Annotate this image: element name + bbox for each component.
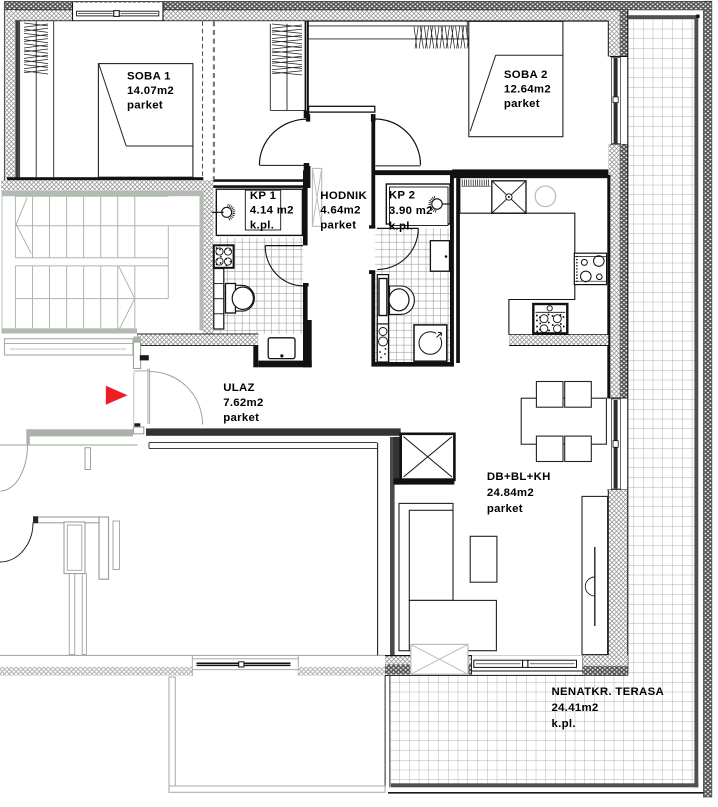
svg-text:parket: parket	[223, 412, 259, 424]
svg-text:4.64m2: 4.64m2	[320, 205, 360, 217]
svg-text:k.pl.: k.pl.	[389, 220, 413, 232]
svg-text:parket: parket	[487, 503, 523, 515]
svg-text:k.pl.: k.pl.	[552, 718, 576, 730]
svg-text:NENATKR. TERASA: NENATKR. TERASA	[552, 686, 665, 698]
svg-text:k.pl.: k.pl.	[250, 219, 274, 231]
svg-text:HODNIK: HODNIK	[320, 190, 367, 202]
svg-text:parket: parket	[504, 98, 540, 110]
svg-text:4.14 m2: 4.14 m2	[250, 205, 294, 217]
svg-text:parket: parket	[320, 219, 356, 231]
svg-text:ULAZ: ULAZ	[223, 382, 255, 394]
svg-text:12.64m2: 12.64m2	[504, 84, 551, 96]
svg-text:14.07m2: 14.07m2	[127, 85, 174, 97]
svg-text:DB+BL+KH: DB+BL+KH	[487, 471, 551, 483]
svg-text:3.90 m2: 3.90 m2	[389, 205, 433, 217]
svg-text:24.84m2: 24.84m2	[487, 487, 534, 499]
svg-text:SOBA 1: SOBA 1	[127, 70, 171, 82]
svg-text:KP 2: KP 2	[389, 190, 415, 202]
svg-text:KP 1: KP 1	[250, 190, 277, 202]
svg-text:24.41m2: 24.41m2	[552, 702, 599, 714]
svg-text:SOBA 2: SOBA 2	[504, 69, 548, 81]
svg-text:parket: parket	[127, 100, 163, 112]
svg-text:7.62m2: 7.62m2	[223, 397, 263, 409]
